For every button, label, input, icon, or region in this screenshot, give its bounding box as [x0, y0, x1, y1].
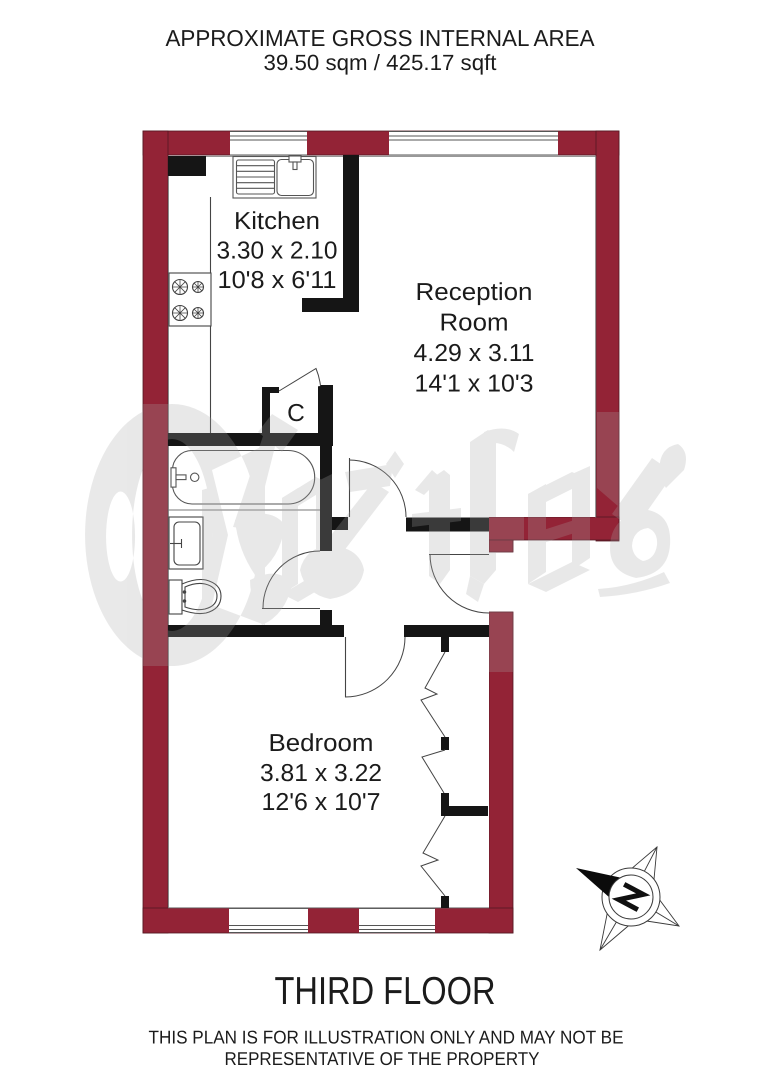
- svg-text:12'6 x 10'7: 12'6 x 10'7: [262, 789, 381, 816]
- svg-text:Reception: Reception: [416, 279, 533, 306]
- svg-text:3.30 x 2.10: 3.30 x 2.10: [217, 238, 338, 265]
- svg-text:Room: Room: [440, 310, 509, 337]
- svg-text:C: C: [287, 400, 305, 427]
- svg-text:3.81 x 3.22: 3.81 x 3.22: [260, 760, 382, 787]
- svg-text:4.29 x 3.11: 4.29 x 3.11: [414, 340, 535, 367]
- svg-text:THIS PLAN IS FOR ILLUSTRATION: THIS PLAN IS FOR ILLUSTRATION ONLY AND M…: [149, 1027, 624, 1048]
- svg-text:REPRESENTATIVE OF THE PROPERTY: REPRESENTATIVE OF THE PROPERTY: [225, 1048, 540, 1069]
- svg-text:39.50 sqm / 425.17 sqft: 39.50 sqm / 425.17 sqft: [264, 50, 497, 75]
- svg-text:14'1 x 10'3: 14'1 x 10'3: [415, 371, 534, 398]
- svg-text:THIRD FLOOR: THIRD FLOOR: [275, 970, 496, 1013]
- svg-text:Bedroom: Bedroom: [269, 730, 374, 757]
- svg-text:APPROXIMATE GROSS INTERNAL ARE: APPROXIMATE GROSS INTERNAL AREA: [166, 25, 596, 51]
- svg-text:Kitchen: Kitchen: [234, 208, 320, 235]
- svg-text:10'8 x 6'11: 10'8 x 6'11: [218, 267, 337, 294]
